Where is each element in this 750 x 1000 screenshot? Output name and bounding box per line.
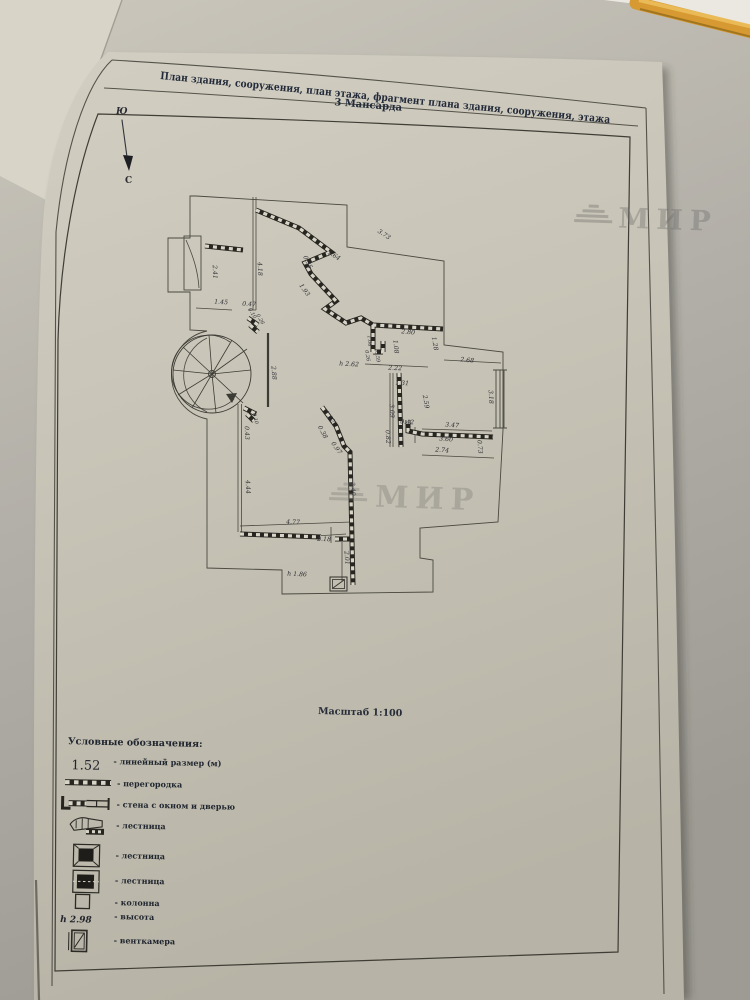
compass-north-label: С [125,176,132,186]
legend-item-label: - высота [114,911,154,922]
dimension-label: 2.88 [269,365,277,380]
height-sample: h 2.98 [60,915,93,926]
photo-canvas: План здания, сооружения, план этажа, фра… [0,0,750,1000]
dimension-label: 2.22 [387,365,402,373]
room-height-label: h 2.62 [339,360,359,368]
dimension-label: 1.31 [395,380,409,388]
dimension-label: 4.18 [256,261,264,276]
legend-item-label: - колонна [114,897,159,908]
dimension-label: 2.74 [434,446,449,454]
dimension-label: 1.06 [366,335,373,347]
legend-item-label: - лестница [115,875,165,886]
legend-item-label: - лестница [115,850,165,861]
dimension-label: 3.09 [388,404,396,418]
watermark-text: МИР [375,480,481,519]
dimension-label: 1.45 [214,299,228,307]
legend-item-label: - лестница [116,820,166,831]
dimension-label: 3.60 [439,436,453,444]
floor-plan-photo: План здания, сооружения, план этажа, фра… [0,0,750,1000]
dimension-label: 0.73 [475,440,483,454]
dimension-label: 4.77 [285,519,300,527]
dimension-label: 1.08 [391,340,399,354]
dimension-label: 2.01 [342,550,350,565]
dimension-label: 0.82 [384,430,392,444]
dimension-label: 2.41 [211,264,219,279]
room-height-label: h 1.86 [287,571,307,579]
dimension-label: 4.44 [244,479,252,494]
dimension-label: 3.47 [445,422,459,430]
partition-icon [65,782,111,783]
dimension-label: 0.42 [400,419,414,427]
scale-label: Масштаб 1:100 [318,706,403,719]
dimension-label: 0.43 [243,426,250,440]
dimension-label: 0.47 [242,301,256,309]
dimension-label: 3.18 [487,390,495,404]
compass-south-label: Ю [115,107,128,117]
linear-size-sample: 1.52 [71,758,100,774]
dimension-label: 2.18 [316,536,331,544]
legend-item-label: - венткамера [114,935,176,946]
watermark-text: МИР [618,202,719,238]
legend-item-label: - перегородка [117,778,182,789]
